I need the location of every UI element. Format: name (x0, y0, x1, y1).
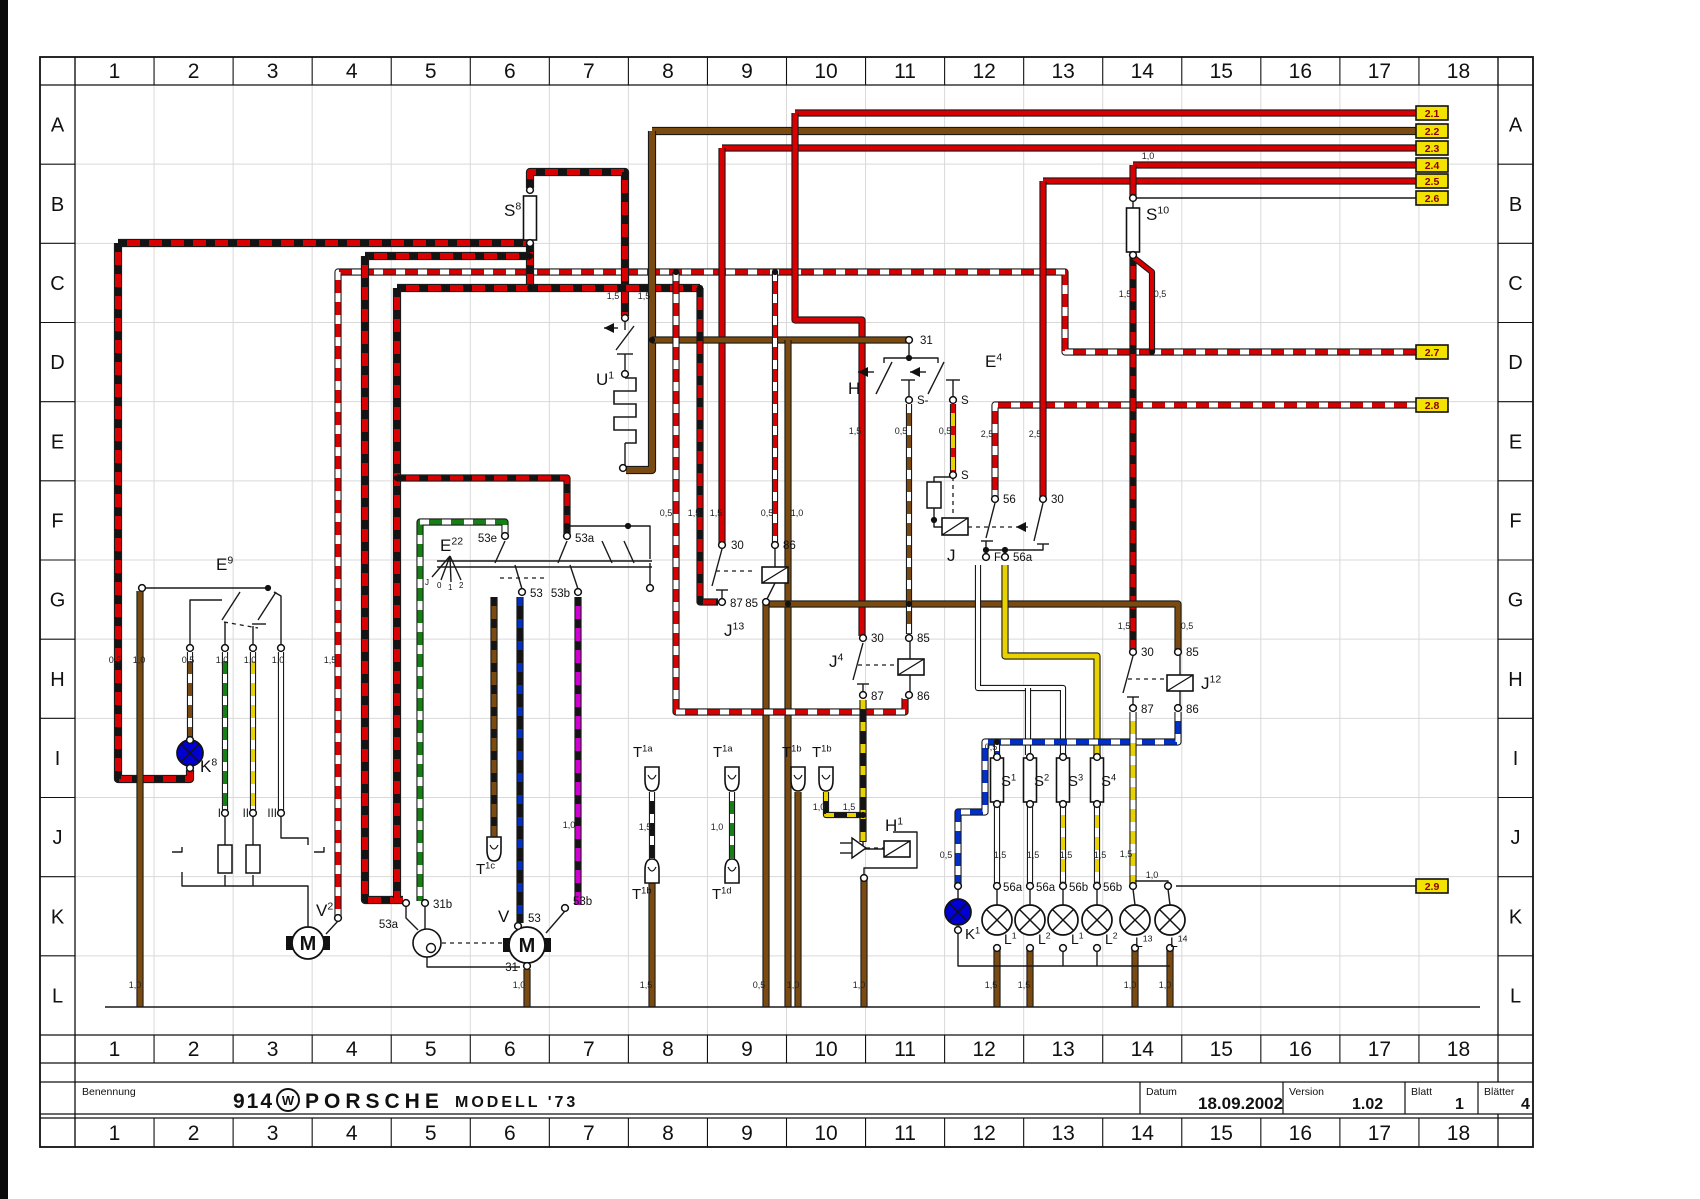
wire-gauge-label: 1,5 (324, 655, 337, 665)
wire-gauge-label: 0,5 (109, 655, 122, 665)
ref-tag[interactable]: 2.7 (1416, 345, 1448, 359)
wire-gauge-label: 0,5 (761, 508, 774, 518)
wiring-diagram-page: MM 1112223334445556667778889991010101111… (0, 0, 1700, 1199)
terminal-label: 87 (730, 598, 743, 610)
junction-dot (931, 517, 937, 523)
terminal-node (1094, 945, 1101, 952)
junction-dot (860, 812, 866, 818)
terminal-label: 85 (1186, 647, 1199, 659)
terminal-node (994, 883, 1001, 890)
wire-gauge-label: 1,0 (216, 655, 229, 665)
terminal-label: 86 (783, 540, 796, 552)
wire-gauge-label: 1,5 (640, 980, 653, 990)
wire-gauge-label: 1,5 (843, 802, 856, 812)
blatt-value: 1 (1455, 1096, 1464, 1113)
terminal-node (422, 900, 429, 907)
wire-gauge-label: 0,5 (939, 426, 952, 436)
grid-row-label-right: A (1509, 115, 1523, 137)
grid-column-label: 14 (1131, 1122, 1155, 1145)
grid-column-label: 6 (504, 1122, 516, 1145)
terminal-node (622, 315, 629, 322)
signal-line (450, 556, 451, 582)
grid-row-label-right: C (1508, 273, 1522, 295)
grid-column-label: 13 (1052, 1038, 1075, 1061)
grid-column-label: 18 (1447, 60, 1470, 83)
terminal-node (1060, 801, 1067, 808)
terminal-label: 56a (1013, 552, 1033, 564)
terminal-node (1130, 705, 1137, 712)
wire-gauge-label: 1,0 (791, 508, 804, 518)
grid-column-label: 14 (1131, 60, 1155, 83)
grid-row-label-left: A (51, 115, 65, 137)
terminal-label: 2 (459, 581, 464, 590)
wire-gauge-label: 0,5 (182, 655, 195, 665)
terminal-node (983, 554, 990, 561)
terminal-label: S (961, 395, 969, 407)
grid-column-label: 15 (1210, 1038, 1233, 1061)
terminal-node (222, 810, 229, 817)
terminal-node (139, 585, 146, 592)
terminal-node (278, 645, 285, 652)
junction-dot (772, 269, 778, 275)
motor-letter: M (519, 935, 536, 957)
grid-column-label: 14 (1131, 1038, 1155, 1061)
grid-row-label-left: L (52, 985, 63, 1007)
grid-column-label: 5 (425, 1038, 437, 1061)
ref-tag[interactable]: 2.5 (1416, 174, 1448, 188)
grid-row-label-right: K (1509, 906, 1523, 928)
version-value: 1.02 (1352, 1096, 1383, 1113)
ref-tag[interactable]: 2.8 (1416, 398, 1448, 412)
ref-tag-label[interactable]: 2.7 (1425, 347, 1440, 359)
terminal-label: 31b (433, 899, 452, 911)
brand-porsche: PORSCHE (305, 1090, 444, 1113)
grid-column-label: 12 (972, 1122, 995, 1145)
grid-column-label: 1 (109, 1038, 121, 1061)
terminal-label: 30 (871, 633, 884, 645)
terminal-node (1002, 554, 1009, 561)
junction-dot (906, 601, 912, 607)
terminal-node (906, 397, 913, 404)
wire-gauge-label: 1,5 (639, 822, 652, 832)
terminal-label: 87 (1141, 704, 1154, 716)
grid-column-label: 4 (346, 1038, 358, 1061)
fuse-icon (524, 196, 537, 240)
grid-column-label: 6 (504, 60, 516, 83)
grid-row-label-left: H (50, 669, 64, 691)
terminal-node (992, 496, 999, 503)
wire-gauge-label: 1,5 (638, 291, 651, 301)
terminal-node (250, 810, 257, 817)
terminal-node (906, 337, 913, 344)
terminal-label: 31 (505, 962, 518, 974)
terminal-label: 56b (1103, 882, 1122, 894)
ref-tag-label[interactable]: 2.4 (1425, 160, 1440, 172)
grid-column-label: 17 (1368, 1122, 1391, 1145)
blatt-label: Blatt (1411, 1086, 1432, 1098)
benennung-label: Benennung (82, 1086, 136, 1098)
grid-column-label: 2 (188, 1038, 200, 1061)
wire-gauge-label: 1,0 (513, 980, 526, 990)
wire-gauge-label: 1,5 (1060, 850, 1073, 860)
grid-column-label: 11 (894, 60, 916, 83)
fuse-icon (1127, 208, 1140, 252)
terminal-node (860, 635, 867, 642)
junction-dot (697, 285, 703, 291)
terminal-node (1027, 801, 1034, 808)
terminal-node (994, 945, 1001, 952)
terminal-label: 56a (1036, 882, 1056, 894)
terminal-node (994, 754, 1001, 761)
terminal-label: 85 (745, 598, 758, 610)
terminal-label: 85 (917, 633, 930, 645)
terminal-node (719, 599, 726, 606)
wire-gauge-label: 1,0 (244, 655, 257, 665)
datum-label: Datum (1146, 1086, 1177, 1098)
terminal-node (524, 963, 531, 970)
grid-row-label-left: C (50, 273, 64, 295)
grid-column-label: 18 (1447, 1122, 1470, 1145)
model-label: MODELL '73 (455, 1094, 578, 1111)
grid-column-label: 13 (1052, 1122, 1075, 1145)
grid-column-label: 2 (188, 1122, 200, 1145)
terminal-node (187, 737, 194, 744)
grid-column-label: 15 (1210, 60, 1233, 83)
wire-gauge-label: 1,5 (985, 980, 998, 990)
pump-inner (427, 944, 436, 953)
grid-row-label-right: H (1508, 669, 1522, 691)
ref-tag-label[interactable]: 2.6 (1425, 193, 1440, 205)
wire-gauge-label: 1,0 (563, 820, 576, 830)
brand-914: 914 (233, 1090, 274, 1113)
wire-gauge-label: 1,0 (1159, 980, 1172, 990)
ref-tag-label[interactable]: 2.1 (1425, 108, 1440, 120)
blaetter-value: 4 (1521, 1096, 1530, 1113)
component-label: H (848, 379, 860, 398)
terminal-label: 86 (917, 691, 930, 703)
terminal-node (575, 589, 582, 596)
terminal-node (250, 645, 257, 652)
grid-row-label-right: L (1510, 985, 1521, 1007)
wire-gauge-label: 0,5 (940, 850, 953, 860)
terminal-label: S- (917, 395, 929, 407)
grid-row-label-left: F (51, 510, 63, 532)
wire-gauge-label: 1,5 (607, 291, 620, 301)
wire-gauge-label: 1,0 (272, 655, 285, 665)
junction-dot (527, 285, 533, 291)
grid-column-label: 18 (1447, 1038, 1470, 1061)
ref-tag[interactable]: 2.3 (1416, 141, 1448, 155)
terminal-node (564, 533, 571, 540)
grid-column-label: 15 (1210, 1122, 1233, 1145)
ref-tag[interactable]: 2.6 (1416, 191, 1448, 205)
resistor-icon (218, 845, 232, 873)
wire-gauge-label: 1,0 (129, 980, 142, 990)
ref-tag[interactable]: 2.2 (1416, 124, 1448, 138)
grid-row-label-right: F (1509, 510, 1521, 532)
grid-column-label: 8 (662, 1122, 674, 1145)
grid-column-label: 6 (504, 1038, 516, 1061)
resistor-icon (927, 482, 941, 508)
terminal-node (955, 927, 962, 934)
terminal-node (1175, 705, 1182, 712)
grid-column-label: 9 (741, 60, 753, 83)
grid-column-label: 8 (662, 1038, 674, 1061)
wire-gauge-label: 0,5 (660, 508, 673, 518)
grid-column-label: 16 (1289, 60, 1312, 83)
grid-column-label: 17 (1368, 1038, 1391, 1061)
scan-edge-strip (0, 0, 8, 1199)
terminal-node (1094, 883, 1101, 890)
wire-gauge-label: 1,5 (1027, 850, 1040, 860)
wire-gauge-label: 1,5 (1094, 850, 1107, 860)
grid-column-label: 7 (583, 60, 595, 83)
wire-gauge-label: 1,0 (1124, 980, 1137, 990)
terminal-node (1027, 883, 1034, 890)
ref-tag-label[interactable]: 2.9 (1425, 881, 1440, 893)
junction-dot (1149, 349, 1155, 355)
terminal-node (1130, 195, 1137, 202)
junction-dot (1002, 547, 1008, 553)
grid-column-label: 3 (267, 1122, 279, 1145)
terminal-node (1040, 496, 1047, 503)
grid-column-label: 10 (814, 1038, 837, 1061)
grid-column-label: 1 (109, 1122, 121, 1145)
terminal-label: 53a (379, 919, 399, 931)
terminal-label: 30 (1141, 647, 1154, 659)
terminal-label: 87 (871, 691, 884, 703)
junction-dot (673, 269, 679, 275)
grid-row-label-right: J (1511, 827, 1521, 849)
ref-tag-label[interactable]: 2.3 (1425, 143, 1440, 155)
grid-column-label: 9 (741, 1122, 753, 1145)
terminal-node (1060, 945, 1067, 952)
terminal-node (763, 599, 770, 606)
wire-gauge-label: 1,5 (1018, 980, 1031, 990)
wire-gauge-label: 0,5 (1154, 289, 1167, 299)
wire-gauge-label: 1,5 (1119, 289, 1132, 299)
terminal-node (335, 915, 342, 922)
ref-tag[interactable]: 2.1 (1416, 106, 1448, 120)
wire-gauge-label: 0,5 (1181, 621, 1194, 631)
terminal-node (187, 765, 194, 772)
grid-column-label: 2 (188, 60, 200, 83)
terminal-node (1130, 252, 1137, 259)
junction-dot (394, 475, 400, 481)
grid-column-label: 7 (583, 1122, 595, 1145)
resistor-icon (246, 845, 260, 873)
wire-gauge-label: 1,5 (1120, 849, 1133, 859)
terminal-node (719, 542, 726, 549)
terminal-label: S (961, 470, 969, 482)
motor-letter: M (300, 933, 317, 955)
terminal-label: 53b (551, 588, 570, 600)
grid-column-label: 4 (346, 60, 358, 83)
terminal-label: I (218, 808, 221, 820)
terminal-label: 0 (437, 581, 442, 590)
terminal-label: 53 (528, 913, 541, 925)
terminal-label: 56a (1003, 882, 1023, 894)
wire-gauge-label: 1,0 (853, 980, 866, 990)
wire-gauge-label: 2,5 (1029, 429, 1042, 439)
blaetter-label: Blätter (1484, 1086, 1515, 1098)
terminal-node (1175, 649, 1182, 656)
terminal-node (187, 645, 194, 652)
grid-column-label: 8 (662, 60, 674, 83)
junction-dot (265, 585, 271, 591)
junction-dot (649, 337, 655, 343)
junction-dot (527, 253, 533, 259)
wire-gauge-label: 1,0 (813, 802, 826, 812)
terminal-label: 53e (478, 533, 497, 545)
terminal-label: 53a (575, 533, 595, 545)
grid-row-label-left: E (51, 431, 64, 453)
terminal-label: J (425, 578, 429, 587)
wire-gauge-label: 2,5 (981, 429, 994, 439)
grid-row-label-left: K (51, 906, 65, 928)
grid-row-label-right: B (1509, 194, 1522, 216)
wire-gauge-label: 1,0 (1142, 151, 1155, 161)
terminal-node (1060, 754, 1067, 761)
grid-row-label-left: B (51, 194, 64, 216)
grid-column-label: 10 (814, 60, 837, 83)
terminal-label: 53b (573, 896, 592, 908)
wire-gauge-label: 1,0 (1146, 870, 1159, 880)
grid-row-label-right: I (1513, 748, 1519, 770)
vw-logo-letter: W (282, 1093, 295, 1108)
terminal-node (502, 533, 509, 540)
junction-dot (625, 523, 631, 529)
ref-tag-label[interactable]: 2.2 (1425, 126, 1440, 138)
grid-column-label: 5 (425, 1122, 437, 1145)
terminal-label: 30 (1051, 494, 1064, 506)
terminal-node (772, 542, 779, 549)
terminal-node (519, 589, 526, 596)
grid-column-label: 12 (972, 1038, 995, 1061)
grid-row-label-right: E (1509, 431, 1522, 453)
grid-row-label-left: J (53, 827, 63, 849)
terminal-label: 56 (1003, 494, 1016, 506)
terminal-node (1027, 754, 1034, 761)
terminal-node (994, 801, 1001, 808)
grid-column-label: 11 (894, 1122, 916, 1145)
grid-row-label-left: G (50, 590, 66, 612)
ref-tag-label[interactable]: 2.5 (1425, 176, 1440, 188)
terminal-node (527, 240, 534, 247)
grid-column-label: 9 (741, 1038, 753, 1061)
grid-column-label: 4 (346, 1122, 358, 1145)
junction-dot (564, 523, 570, 529)
grid-row-label-right: D (1508, 352, 1522, 374)
terminal-label: 53 (530, 588, 543, 600)
grid-row-label-left: I (55, 748, 61, 770)
terminal-node (403, 900, 410, 907)
grid-column-label: 13 (1052, 60, 1075, 83)
wire-gauge-label: 1,5 (710, 508, 723, 518)
terminal-label: 86 (1186, 704, 1199, 716)
component-label: J (947, 546, 956, 565)
junction-dot (785, 601, 791, 607)
grid-column-label: 16 (1289, 1122, 1312, 1145)
terminal-node (222, 645, 229, 652)
terminal-node (527, 187, 534, 194)
grid-column-label: 1 (109, 60, 121, 83)
terminal-node (647, 585, 654, 592)
terminal-node (1027, 945, 1034, 952)
terminal-label: 1 (448, 583, 453, 592)
pump-icon (413, 929, 441, 957)
terminal-node (1165, 883, 1172, 890)
terminal-label: II (243, 808, 249, 820)
grid-column-label: 16 (1289, 1038, 1312, 1061)
terminal-node (1094, 801, 1101, 808)
wiring-diagram-canvas: MM 1112223334445556667778889991010101111… (0, 0, 1700, 1199)
wire-gauge-label: 0,5 (985, 742, 998, 752)
wire-gauge-label: 1,5 (849, 426, 862, 436)
terminal-node (860, 692, 867, 699)
terminal-label: 31 (920, 335, 933, 347)
terminal-node (562, 905, 569, 912)
terminal-node (515, 923, 522, 930)
wire-gauge-label: 0,5 (895, 426, 908, 436)
ref-tag[interactable]: 2.4 (1416, 158, 1448, 172)
ref-tag[interactable]: 2.9 (1416, 879, 1448, 893)
grid-column-label: 7 (583, 1038, 595, 1061)
terminal-node (1060, 883, 1067, 890)
wire-gauge-label: 1,5 (1118, 621, 1131, 631)
terminal-node (620, 465, 627, 472)
terminal-node (906, 635, 913, 642)
terminal-node (1130, 883, 1137, 890)
terminal-node (950, 472, 957, 479)
grid-column-label: 11 (894, 1038, 916, 1061)
terminal-node (906, 692, 913, 699)
grid-column-label: 12 (972, 60, 995, 83)
terminal-node (1094, 754, 1101, 761)
terminal-node (278, 810, 285, 817)
grid-column-label: 3 (267, 1038, 279, 1061)
wire-gauge-label: 1,0 (711, 822, 724, 832)
wire-gauge-label: 1,0 (133, 655, 146, 665)
grid-row-label-left: D (50, 352, 64, 374)
terminal-node (1130, 649, 1137, 656)
wire-gauge-label: 1,0 (787, 980, 800, 990)
terminal-label: III (267, 808, 277, 820)
grid-column-label: 10 (814, 1122, 837, 1145)
ref-tag-label[interactable]: 2.8 (1425, 400, 1440, 412)
wire-gauge-label: 1,5 (994, 850, 1007, 860)
component-label: V (498, 907, 510, 926)
datum-value: 18.09.2002 (1198, 1094, 1283, 1113)
terminal-node (861, 875, 868, 882)
terminal-label: 30 (731, 540, 744, 552)
grid-column-label: 3 (267, 60, 279, 83)
version-label: Version (1289, 1086, 1324, 1098)
wire-gauge-label: 1,5 (688, 508, 701, 518)
wire-gauge-label: 0,5 (753, 980, 766, 990)
terminal-label: F (994, 552, 1001, 564)
terminal-node (622, 371, 629, 378)
terminal-label: 56b (1069, 882, 1088, 894)
terminal-node (950, 397, 957, 404)
grid-column-label: 17 (1368, 60, 1391, 83)
grid-column-label: 5 (425, 60, 437, 83)
junction-dot (983, 547, 989, 553)
terminal-node (955, 883, 962, 890)
grid-row-label-right: G (1508, 590, 1524, 612)
junction-dot (906, 355, 912, 361)
